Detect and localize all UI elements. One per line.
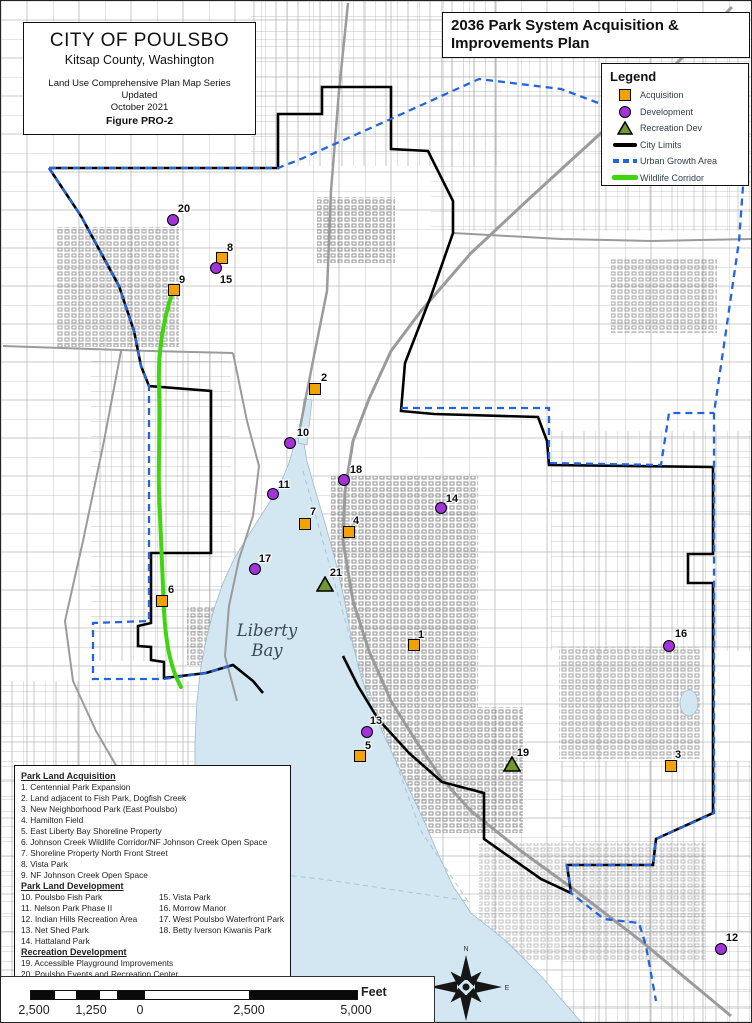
recreation-triangle-icon (610, 121, 640, 135)
legend: Legend AcquisitionDevelopmentRecreation … (601, 63, 749, 186)
marker-label: 21 (330, 567, 342, 579)
park-list-item: 9. NF Johnson Creek Open Space (21, 870, 284, 881)
legend-item: Recreation Dev (610, 120, 740, 137)
park-list-item: 6. Johnson Creek Wildlife Corridor/NF Jo… (21, 837, 284, 848)
acquisition-icon (309, 383, 321, 395)
updated-line: Updated (24, 90, 255, 101)
marker-label: 19 (517, 747, 529, 759)
series-line: Land Use Comprehensive Plan Map Series (24, 78, 255, 89)
development-icon (663, 640, 675, 652)
marker-label: 8 (227, 242, 233, 254)
legend-item: Acquisition (610, 87, 740, 104)
legend-title: Legend (610, 69, 740, 84)
plan-title-box: 2036 Park System Acquisition & Improveme… (442, 12, 750, 58)
development-icon (338, 474, 350, 486)
park-list-item: 8. Vista Park (21, 859, 284, 870)
park-list-item: 11. Nelson Park Phase II (21, 903, 159, 914)
marker-label: 4 (353, 515, 359, 527)
park-list-item: 12. Indian Hills Recreation Area (21, 914, 159, 925)
legend-item-label: Wildlife Corridor (640, 173, 704, 183)
marker-label: 9 (179, 274, 185, 286)
marker-label: 5 (365, 740, 371, 752)
date-line: October 2021 (24, 102, 255, 113)
city-limits-line-icon (610, 143, 640, 147)
park-list-item: 10. Poulsbo Fish Park (21, 892, 159, 903)
acquisition-icon (665, 760, 677, 772)
park-list-item: 7. Shoreline Property North Front Street (21, 848, 284, 859)
legend-items: AcquisitionDevelopmentRecreation DevCity… (610, 87, 740, 186)
park-list-item: 15. Vista Park (159, 892, 284, 903)
marker-label: 15 (220, 274, 232, 286)
legend-item-label: Recreation Dev (640, 123, 702, 133)
marker-label: 20 (178, 203, 190, 215)
park-list-section-title: Recreation Development (21, 947, 284, 958)
scale-bar-label: 1,250 (75, 1003, 106, 1017)
park-list-item: 1. Centennial Park Expansion (21, 782, 284, 793)
acquisition-icon (299, 518, 311, 530)
acquisition-icon (343, 526, 355, 538)
marker-label: 13 (370, 715, 382, 727)
marker-label: 6 (168, 584, 174, 596)
uga-dashed-line-icon (610, 159, 640, 163)
scale-bar-label: 5,000 (340, 1003, 371, 1017)
legend-item: City Limits (610, 137, 740, 154)
park-list-item: 3. New Neighborhood Park (East Poulsbo) (21, 804, 284, 815)
park-list-item: 14. Hattaland Park (21, 936, 159, 947)
marker-label: 10 (297, 427, 309, 439)
park-list-item: 13. Net Shed Park (21, 925, 159, 936)
park-list-section-title: Park Land Development (21, 881, 284, 892)
compass-n: N (463, 946, 468, 953)
legend-item: Development (610, 104, 740, 121)
development-icon (715, 943, 727, 955)
marker-label: 16 (675, 628, 687, 640)
park-list-column: 10. Poulsbo Fish Park11. Nelson Park Pha… (21, 892, 159, 947)
acquisition-square-icon (610, 89, 640, 101)
park-list-item: 18. Betty Iverson Kiwanis Park (159, 925, 284, 936)
city-title: CITY OF POULSBO (24, 30, 255, 52)
map-title-box: CITY OF POULSBO Kitsap County, Washingto… (23, 22, 256, 135)
development-icon (284, 437, 296, 449)
marker-label: 3 (675, 749, 681, 761)
marker-label: 14 (446, 493, 458, 505)
marker-label: 17 (259, 553, 271, 565)
legend-item-label: Development (640, 107, 693, 117)
park-list-box: Park Land Acquisition1. Centennial Park … (14, 765, 291, 987)
figure-number: Figure PRO-2 (24, 115, 255, 127)
park-list-item: 4. Hamilton Field (21, 815, 284, 826)
wildlife-line-icon (610, 175, 640, 180)
compass-e: E (505, 985, 510, 992)
scale-bar-segments (30, 990, 358, 1000)
legend-item-label: Acquisition (640, 90, 684, 100)
park-list-item: 19. Accessible Playground Improvements (21, 958, 284, 969)
park-list-item: 2. Land adjacent to Fish Park, Dogfish C… (21, 793, 284, 804)
park-list-item: 17. West Poulsbo Waterfront Park (159, 914, 284, 925)
development-icon (210, 262, 222, 274)
legend-item: Urban Growth Area (610, 153, 740, 170)
marker-label: 7 (310, 506, 316, 518)
legend-item: Wildlife Corridor (610, 170, 740, 187)
county-subtitle: Kitsap County, Washington (24, 53, 255, 67)
development-icon (167, 214, 179, 226)
water-body-label: Liberty Bay (219, 621, 315, 661)
marker-label: 11 (278, 479, 290, 491)
marker-label: 1 (418, 629, 424, 641)
marker-label: 12 (726, 932, 738, 944)
park-list-section-title: Park Land Acquisition (21, 771, 284, 782)
acquisition-icon (156, 595, 168, 607)
map-canvas: N E S W Liberty Bay 12345678910111213141… (0, 0, 752, 1023)
pond (680, 690, 698, 716)
park-list-item: 16. Morrow Manor (159, 903, 284, 914)
scale-bar: 2,5001,25002,5005,000 Feet (1, 976, 435, 1023)
plan-title: 2036 Park System Acquisition & Improveme… (451, 17, 741, 53)
marker-label: 2 (321, 372, 327, 384)
legend-item-label: Urban Growth Area (640, 156, 717, 166)
park-list-column: 15. Vista Park16. Morrow Manor17. West P… (159, 892, 284, 947)
marker-label: 18 (350, 464, 362, 476)
scale-bar-unit: Feet (361, 985, 387, 999)
scale-bar-label: 0 (137, 1003, 144, 1017)
scale-bar-label: 2,500 (18, 1003, 49, 1017)
legend-item-label: City Limits (640, 140, 682, 150)
scale-bar-label: 2,500 (233, 1003, 264, 1017)
development-circle-icon (610, 106, 640, 118)
development-icon (361, 726, 373, 738)
park-list-item: 5. East Liberty Bay Shoreline Property (21, 826, 284, 837)
